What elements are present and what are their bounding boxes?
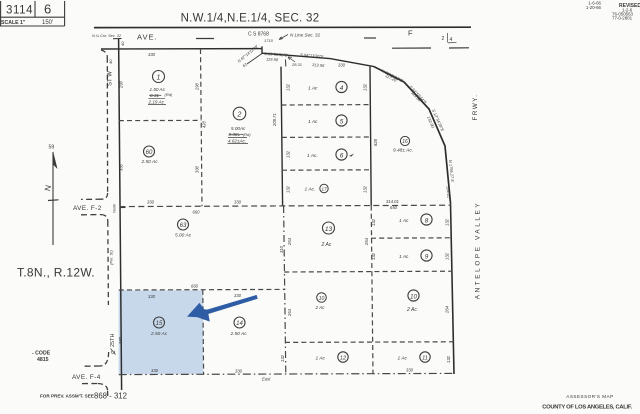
svg-text:330: 330 xyxy=(151,368,159,373)
svg-text:119.98: 119.98 xyxy=(266,57,279,63)
svg-text:314.01: 314.01 xyxy=(386,199,399,204)
svg-text:2: 2 xyxy=(237,112,242,119)
svg-text:1 Ac.: 1 Ac. xyxy=(305,187,316,193)
svg-text:2.50 Ac: 2.50 Ac xyxy=(141,159,159,165)
svg-text:330: 330 xyxy=(234,200,242,205)
svg-text:13: 13 xyxy=(325,226,333,233)
svg-text:2.19 Ac: 2.19 Ac xyxy=(148,100,165,105)
svg-text:ANTELOPE VALLEY: ANTELOPE VALLEY xyxy=(475,201,482,300)
svg-text:FRWY.: FRWY. xyxy=(472,93,479,120)
svg-text:264: 264 xyxy=(364,237,369,246)
svg-text:59: 59 xyxy=(49,145,55,151)
svg-text:East: East xyxy=(262,377,271,382)
svg-text:310: 310 xyxy=(279,245,284,253)
svg-text:2: 2 xyxy=(442,36,445,42)
svg-text:- CODE: - CODE xyxy=(32,351,51,357)
svg-text:104.01: 104.01 xyxy=(446,186,452,199)
svg-text:16: 16 xyxy=(402,139,408,145)
svg-text:660: 660 xyxy=(193,210,201,215)
svg-text:264: 264 xyxy=(445,305,450,314)
svg-text:FOR PREV. ASSM'T. SEE: FOR PREV. ASSM'T. SEE xyxy=(40,394,94,399)
svg-text:14: 14 xyxy=(236,321,243,327)
svg-text:1 Ac: 1 Ac xyxy=(316,356,326,362)
svg-text:330: 330 xyxy=(118,336,123,344)
svg-text:2 Ac: 2 Ac xyxy=(315,305,326,310)
svg-text:290: 290 xyxy=(195,82,200,91)
svg-text:40: 40 xyxy=(108,59,113,64)
svg-text:15: 15 xyxy=(156,321,163,327)
svg-text:N.W.1/4,N.E.1/4, SEC. 32: N.W.1/4,N.E.1/4, SEC. 32 xyxy=(181,13,320,25)
svg-text:330: 330 xyxy=(406,368,414,373)
svg-text:(Por. St): (Por. St) xyxy=(109,250,114,265)
svg-text:C S 8768: C S 8768 xyxy=(248,32,269,38)
svg-text:AVE. F-2: AVE. F-2 xyxy=(73,205,102,212)
svg-text:330: 330 xyxy=(195,165,200,173)
svg-text:COUNTY OF LOS ANGELES, CALIF.: COUNTY OF LOS ANGELES, CALIF. xyxy=(542,405,632,411)
svg-text:330: 330 xyxy=(148,294,156,299)
svg-text:132: 132 xyxy=(371,252,376,260)
svg-text:420: 420 xyxy=(202,120,207,128)
svg-text:208.71: 208.71 xyxy=(272,113,277,127)
svg-text:4.62±Ac.: 4.62±Ac. xyxy=(228,139,246,144)
svg-text:N Line Sec. 32: N Line Sec. 32 xyxy=(290,33,321,38)
svg-text:ASSESSOR'S MAP: ASSESSOR'S MAP xyxy=(566,394,613,399)
svg-text:264: 264 xyxy=(287,237,292,246)
svg-text:T.8N., R.12W.: T.8N., R.12W. xyxy=(17,266,95,280)
svg-text:132: 132 xyxy=(363,185,368,193)
svg-text:660: 660 xyxy=(191,284,199,289)
svg-text:9: 9 xyxy=(425,253,429,260)
svg-text:40: 40 xyxy=(120,41,125,46)
svg-text:330: 330 xyxy=(338,63,346,68)
svg-text:330: 330 xyxy=(148,52,156,57)
svg-text:1: 1 xyxy=(157,75,161,82)
svg-text:132: 132 xyxy=(286,83,291,91)
svg-text:5: 5 xyxy=(340,118,344,125)
svg-text:11: 11 xyxy=(422,356,428,362)
svg-text:2 Ac: 2 Ac xyxy=(321,242,332,248)
svg-text:North: North xyxy=(113,204,117,213)
svg-text:4: 4 xyxy=(450,37,453,43)
svg-text:AVE.: AVE. xyxy=(137,33,158,42)
svg-text:132: 132 xyxy=(371,218,376,226)
svg-text:4815: 4815 xyxy=(37,357,49,363)
svg-text:12: 12 xyxy=(340,356,347,362)
svg-text:150': 150' xyxy=(42,20,53,26)
svg-text:4: 4 xyxy=(340,85,344,92)
svg-text:25TH: 25TH xyxy=(110,334,116,347)
svg-text:264: 264 xyxy=(287,308,292,317)
svg-text:10: 10 xyxy=(410,294,417,300)
svg-text:290: 290 xyxy=(119,80,124,89)
svg-text:5.00 Ac: 5.00 Ac xyxy=(175,233,192,239)
svg-text:1.50 Ac: 1.50 Ac xyxy=(150,87,166,92)
svg-text:132: 132 xyxy=(286,185,291,193)
svg-text:1 Ac.: 1 Ac. xyxy=(307,153,318,159)
svg-text:SCALE 1": SCALE 1" xyxy=(1,20,26,26)
svg-text:3114: 3114 xyxy=(6,5,33,17)
svg-text:1 Ac: 1 Ac xyxy=(399,218,409,224)
svg-text:650: 650 xyxy=(390,205,398,210)
svg-text:868 - 312: 868 - 312 xyxy=(94,392,127,401)
svg-text:132: 132 xyxy=(286,150,291,158)
svg-text:ST W: ST W xyxy=(108,71,114,86)
svg-text:132: 132 xyxy=(446,355,451,363)
svg-text:77-0-2801: 77-0-2801 xyxy=(612,16,633,21)
svg-text:10: 10 xyxy=(319,296,325,302)
svg-text:132: 132 xyxy=(445,218,450,226)
svg-text:330: 330 xyxy=(119,163,124,171)
svg-text:330: 330 xyxy=(234,293,242,298)
svg-text:2 Ac: 2 Ac xyxy=(406,307,417,313)
svg-text:1-20-66: 1-20-66 xyxy=(586,5,602,10)
svg-text:2.50 Ac: 2.50 Ac xyxy=(230,331,248,337)
svg-text:60: 60 xyxy=(146,150,153,156)
svg-text:1710: 1710 xyxy=(264,38,274,43)
svg-text:6: 6 xyxy=(44,2,51,17)
svg-text:N.¼ Cor. Sec. 32: N.¼ Cor. Sec. 32 xyxy=(92,34,122,38)
svg-text:1 Ac: 1 Ac xyxy=(399,254,409,260)
svg-text:2.50 Ac: 2.50 Ac xyxy=(150,331,168,337)
svg-text:330: 330 xyxy=(235,369,243,374)
svg-text:330: 330 xyxy=(147,200,155,205)
svg-text:6: 6 xyxy=(340,152,344,159)
svg-text:8: 8 xyxy=(425,217,429,224)
svg-text:828: 828 xyxy=(373,138,378,146)
svg-text:132: 132 xyxy=(280,354,285,362)
svg-text:28.31: 28.31 xyxy=(291,62,302,67)
svg-text:1 Ac: 1 Ac xyxy=(308,86,318,92)
svg-text:5.00Ac: 5.00Ac xyxy=(231,126,246,131)
svg-text:9.48± Ac.: 9.48± Ac. xyxy=(393,148,413,154)
svg-text:1 Ac: 1 Ac xyxy=(398,356,408,362)
svg-text:132: 132 xyxy=(363,83,368,91)
svg-text:17: 17 xyxy=(321,187,327,193)
svg-text:F: F xyxy=(408,29,413,38)
svg-text:63: 63 xyxy=(180,223,187,229)
svg-text:1 Ac: 1 Ac xyxy=(308,119,318,125)
svg-text:AVE. F-4: AVE. F-4 xyxy=(72,374,101,381)
svg-text:132: 132 xyxy=(445,252,450,260)
